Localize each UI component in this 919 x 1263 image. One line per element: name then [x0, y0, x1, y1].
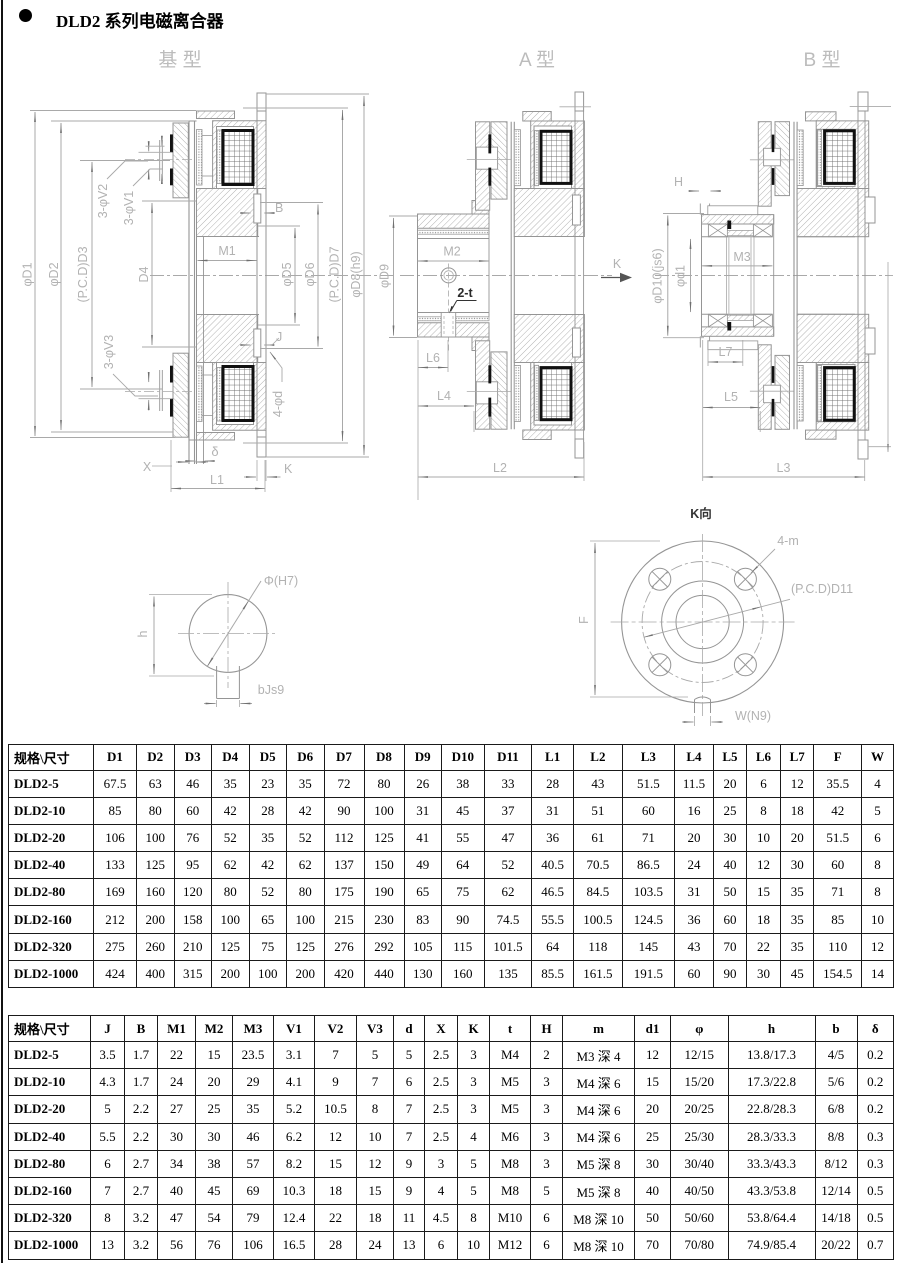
svg-text:K: K — [284, 462, 293, 476]
svg-text:φD2: φD2 — [47, 262, 61, 286]
svg-text:h: h — [136, 630, 150, 637]
svg-text:L2: L2 — [493, 461, 507, 475]
svg-text:K: K — [613, 257, 622, 271]
svg-text:D4: D4 — [137, 266, 151, 282]
svg-text:φD8(h9): φD8(h9) — [349, 251, 363, 297]
svg-text:Φ(H7): Φ(H7) — [264, 574, 298, 588]
svg-text:X: X — [143, 460, 152, 474]
svg-text:(P.C.D)D7: (P.C.D)D7 — [328, 246, 342, 302]
svg-text:3-φV1: 3-φV1 — [122, 191, 136, 226]
svg-text:δ: δ — [211, 444, 218, 459]
svg-text:H: H — [674, 175, 683, 189]
svg-text:(P.C.D)D3: (P.C.D)D3 — [76, 246, 90, 302]
svg-text:φD5: φD5 — [280, 262, 294, 286]
svg-text:F: F — [577, 616, 591, 624]
svg-text:基 型: 基 型 — [158, 49, 201, 71]
svg-text:φD9: φD9 — [378, 264, 392, 288]
svg-text:3-φV2: 3-φV2 — [96, 184, 110, 219]
svg-text:4-m: 4-m — [777, 534, 799, 548]
svg-text:B: B — [275, 201, 283, 215]
svg-text:M2: M2 — [443, 245, 460, 259]
svg-text:J: J — [276, 330, 282, 344]
svg-text:L1: L1 — [210, 473, 224, 487]
svg-text:A 型: A 型 — [519, 49, 555, 71]
svg-text:φD6: φD6 — [303, 262, 317, 286]
svg-text:M1: M1 — [218, 244, 235, 258]
svg-text:φd1: φd1 — [674, 265, 688, 287]
svg-text:φD1: φD1 — [21, 262, 35, 286]
svg-text:M3: M3 — [733, 250, 750, 264]
svg-text:2-t: 2-t — [457, 286, 473, 300]
svg-text:bJs9: bJs9 — [258, 683, 284, 697]
svg-text:(P.C.D)D11: (P.C.D)D11 — [791, 582, 853, 596]
svg-text:B 型: B 型 — [804, 49, 841, 71]
svg-text:φD10(js6): φD10(js6) — [651, 248, 665, 303]
svg-text:L5: L5 — [724, 390, 738, 404]
svg-text:L7: L7 — [719, 345, 733, 359]
svg-text:4-φd: 4-φd — [271, 391, 285, 417]
svg-text:3-φV3: 3-φV3 — [102, 335, 116, 370]
svg-text:W(N9): W(N9) — [735, 709, 771, 723]
svg-text:K向: K向 — [690, 506, 712, 521]
svg-text:L4: L4 — [437, 389, 451, 403]
svg-text:L6: L6 — [426, 351, 440, 365]
svg-text:L3: L3 — [777, 461, 791, 475]
